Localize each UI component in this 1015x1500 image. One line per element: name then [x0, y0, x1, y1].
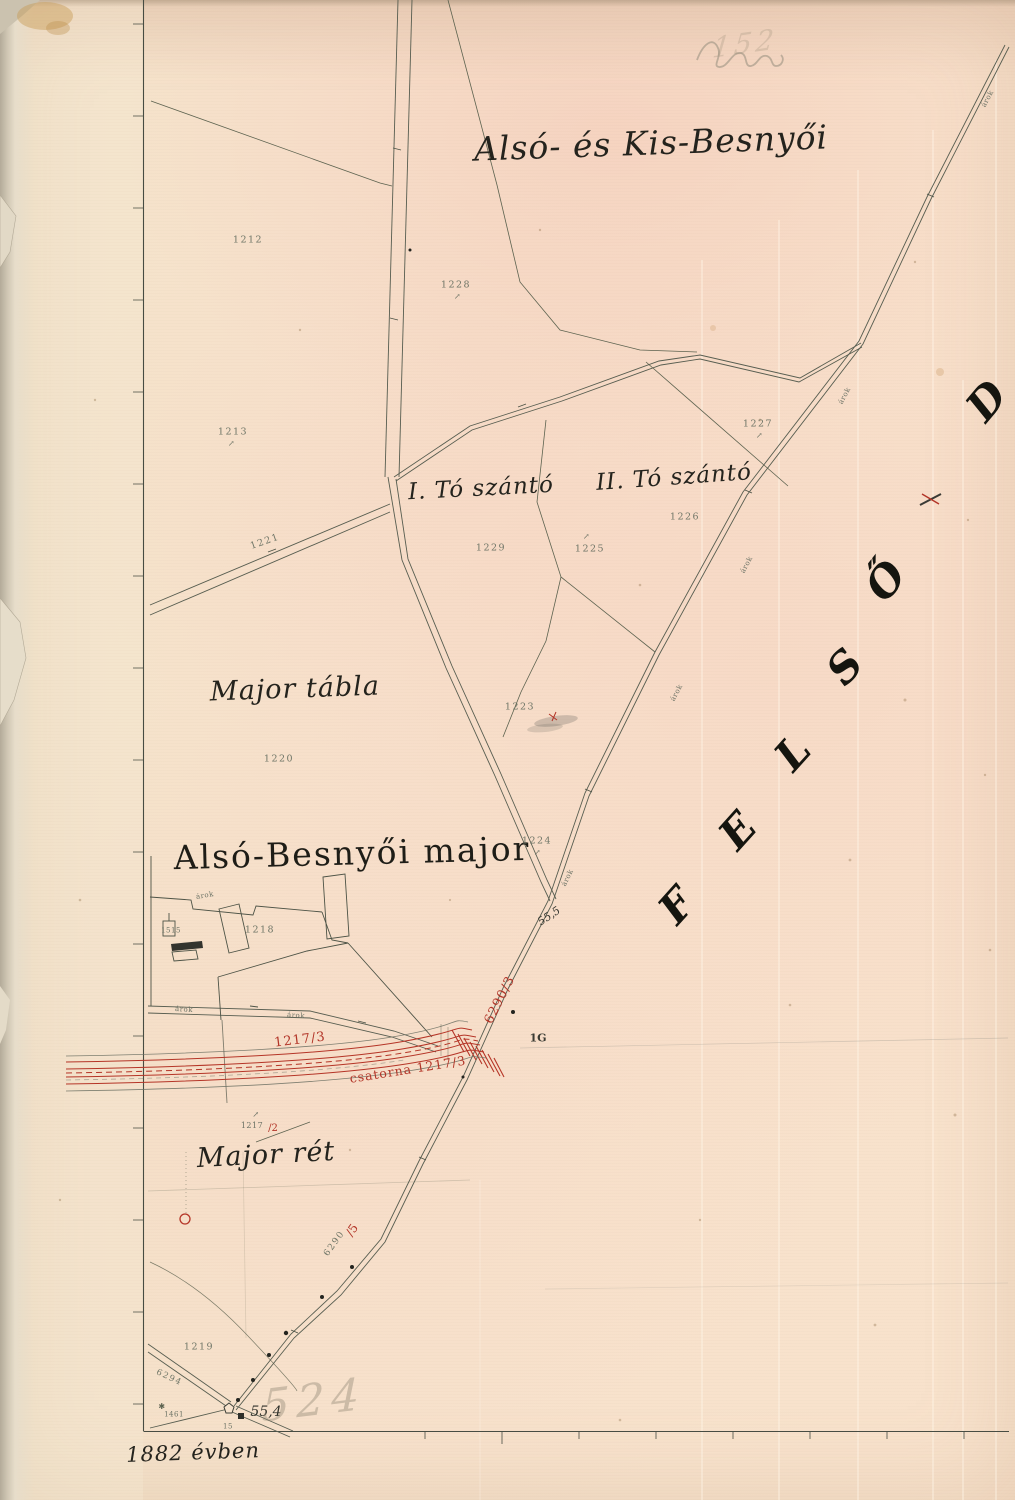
roads [148, 0, 1009, 1437]
survey-marks [224, 148, 941, 1419]
pencil-number-bottom: 524 [262, 1372, 367, 1429]
red-circle-mark [180, 1214, 190, 1224]
parcel-number: 1228 [441, 280, 471, 290]
parcel-number: 1220 [264, 754, 294, 764]
ditch-note: árok [175, 1006, 193, 1014]
parcel-number: 1225 [575, 544, 605, 554]
parcel-number: 1213 [218, 427, 248, 437]
year-note: 1882 évben [126, 1440, 260, 1466]
meadow-symbol: ↗ [756, 432, 764, 440]
parcel-number: 1227 [743, 419, 773, 429]
parcel-number: 1224 [522, 836, 552, 846]
parcel-number: 1226 [670, 512, 700, 522]
parcel-number: 1217 [241, 1122, 263, 1130]
parcel-number: 1212 [233, 235, 263, 245]
parcel-number: 1461 [164, 1412, 184, 1419]
neatline-ticks-left [133, 24, 143, 1404]
parcel-number: 1223 [505, 702, 535, 712]
point-number: 15 [223, 1424, 233, 1431]
map-linework [0, 0, 1015, 1500]
boundary-cross-mark [920, 494, 941, 505]
parcel-number: 1219 [184, 1342, 214, 1352]
parcel-number: 1218 [245, 925, 275, 935]
meadow-symbol: ↗ [583, 533, 591, 541]
red-fraction: /2 [268, 1124, 278, 1134]
major-tabla-label: Major tábla [210, 673, 381, 706]
graphite-smudge [527, 712, 579, 734]
meadow-symbol: ↗ [228, 440, 236, 448]
major-ret-label: Major rét [196, 1138, 336, 1172]
star-symbol: ✱ [158, 1403, 165, 1411]
parcel-number: 1515 [161, 928, 181, 935]
parcel-number: 1229 [476, 543, 506, 553]
meadow-symbol: ↗ [252, 1111, 259, 1119]
farm-title: Alsó-Besnyői major [173, 832, 530, 874]
channel-gray-lines [66, 1021, 486, 1091]
paper-tears [0, 0, 40, 1044]
point-marker-label: 1G [529, 1033, 546, 1044]
ditch-note: árok [287, 1012, 305, 1020]
meadow-symbol: ↗ [454, 293, 462, 301]
meadow-symbol: ↗ [534, 849, 542, 857]
neatline-ticks-bottom [425, 1431, 964, 1444]
map-sheet: Alsó- és Kis-Besnyői I. Tó szántó II. Tó… [0, 0, 1015, 1500]
